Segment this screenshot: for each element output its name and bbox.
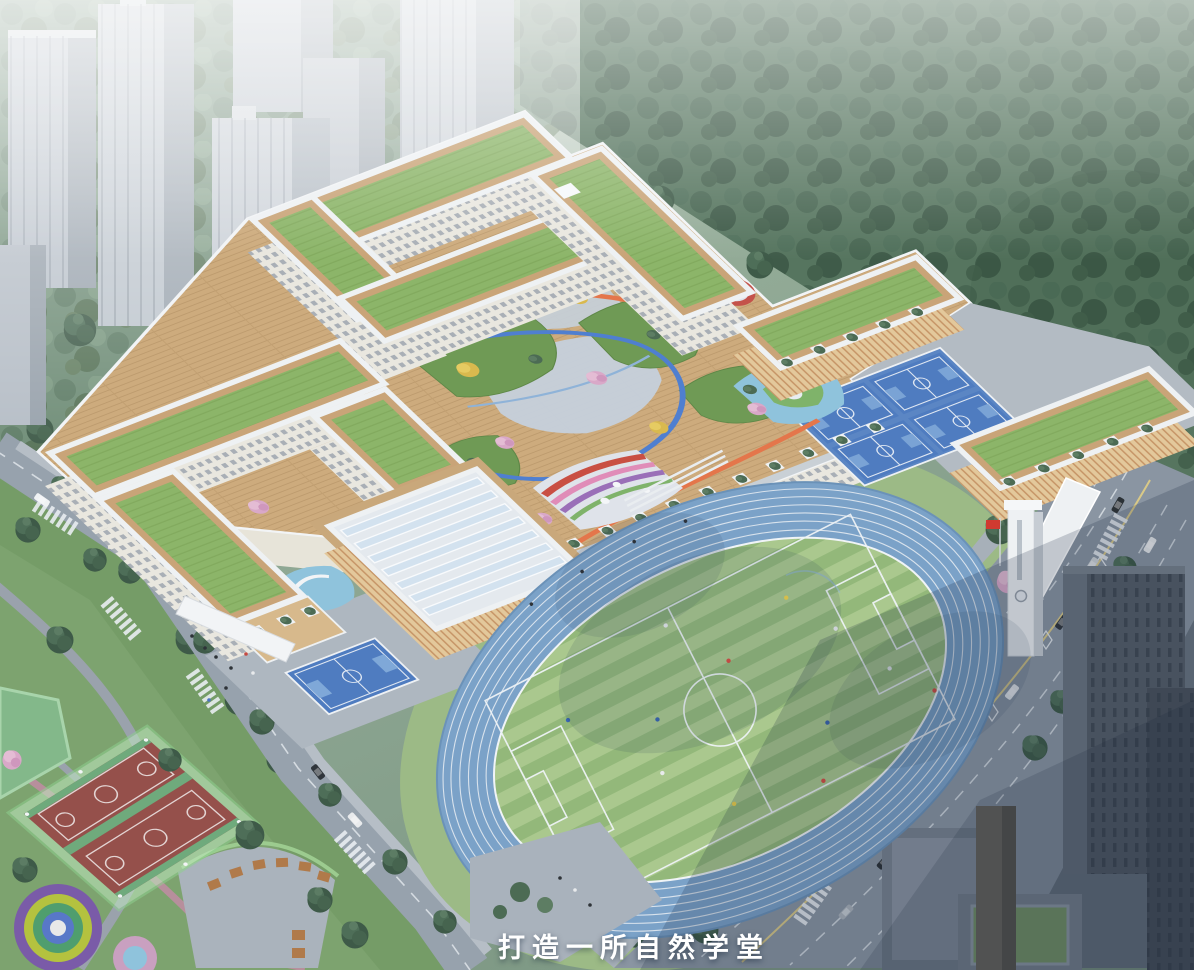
top-mist [0,0,1194,260]
caption-text: 打造一所自然学堂 [498,926,770,965]
red-flag [986,520,1000,529]
rendering-stage: 打造一所自然学堂 [0,0,1194,970]
aerial-rendering-canvas [0,0,1194,970]
